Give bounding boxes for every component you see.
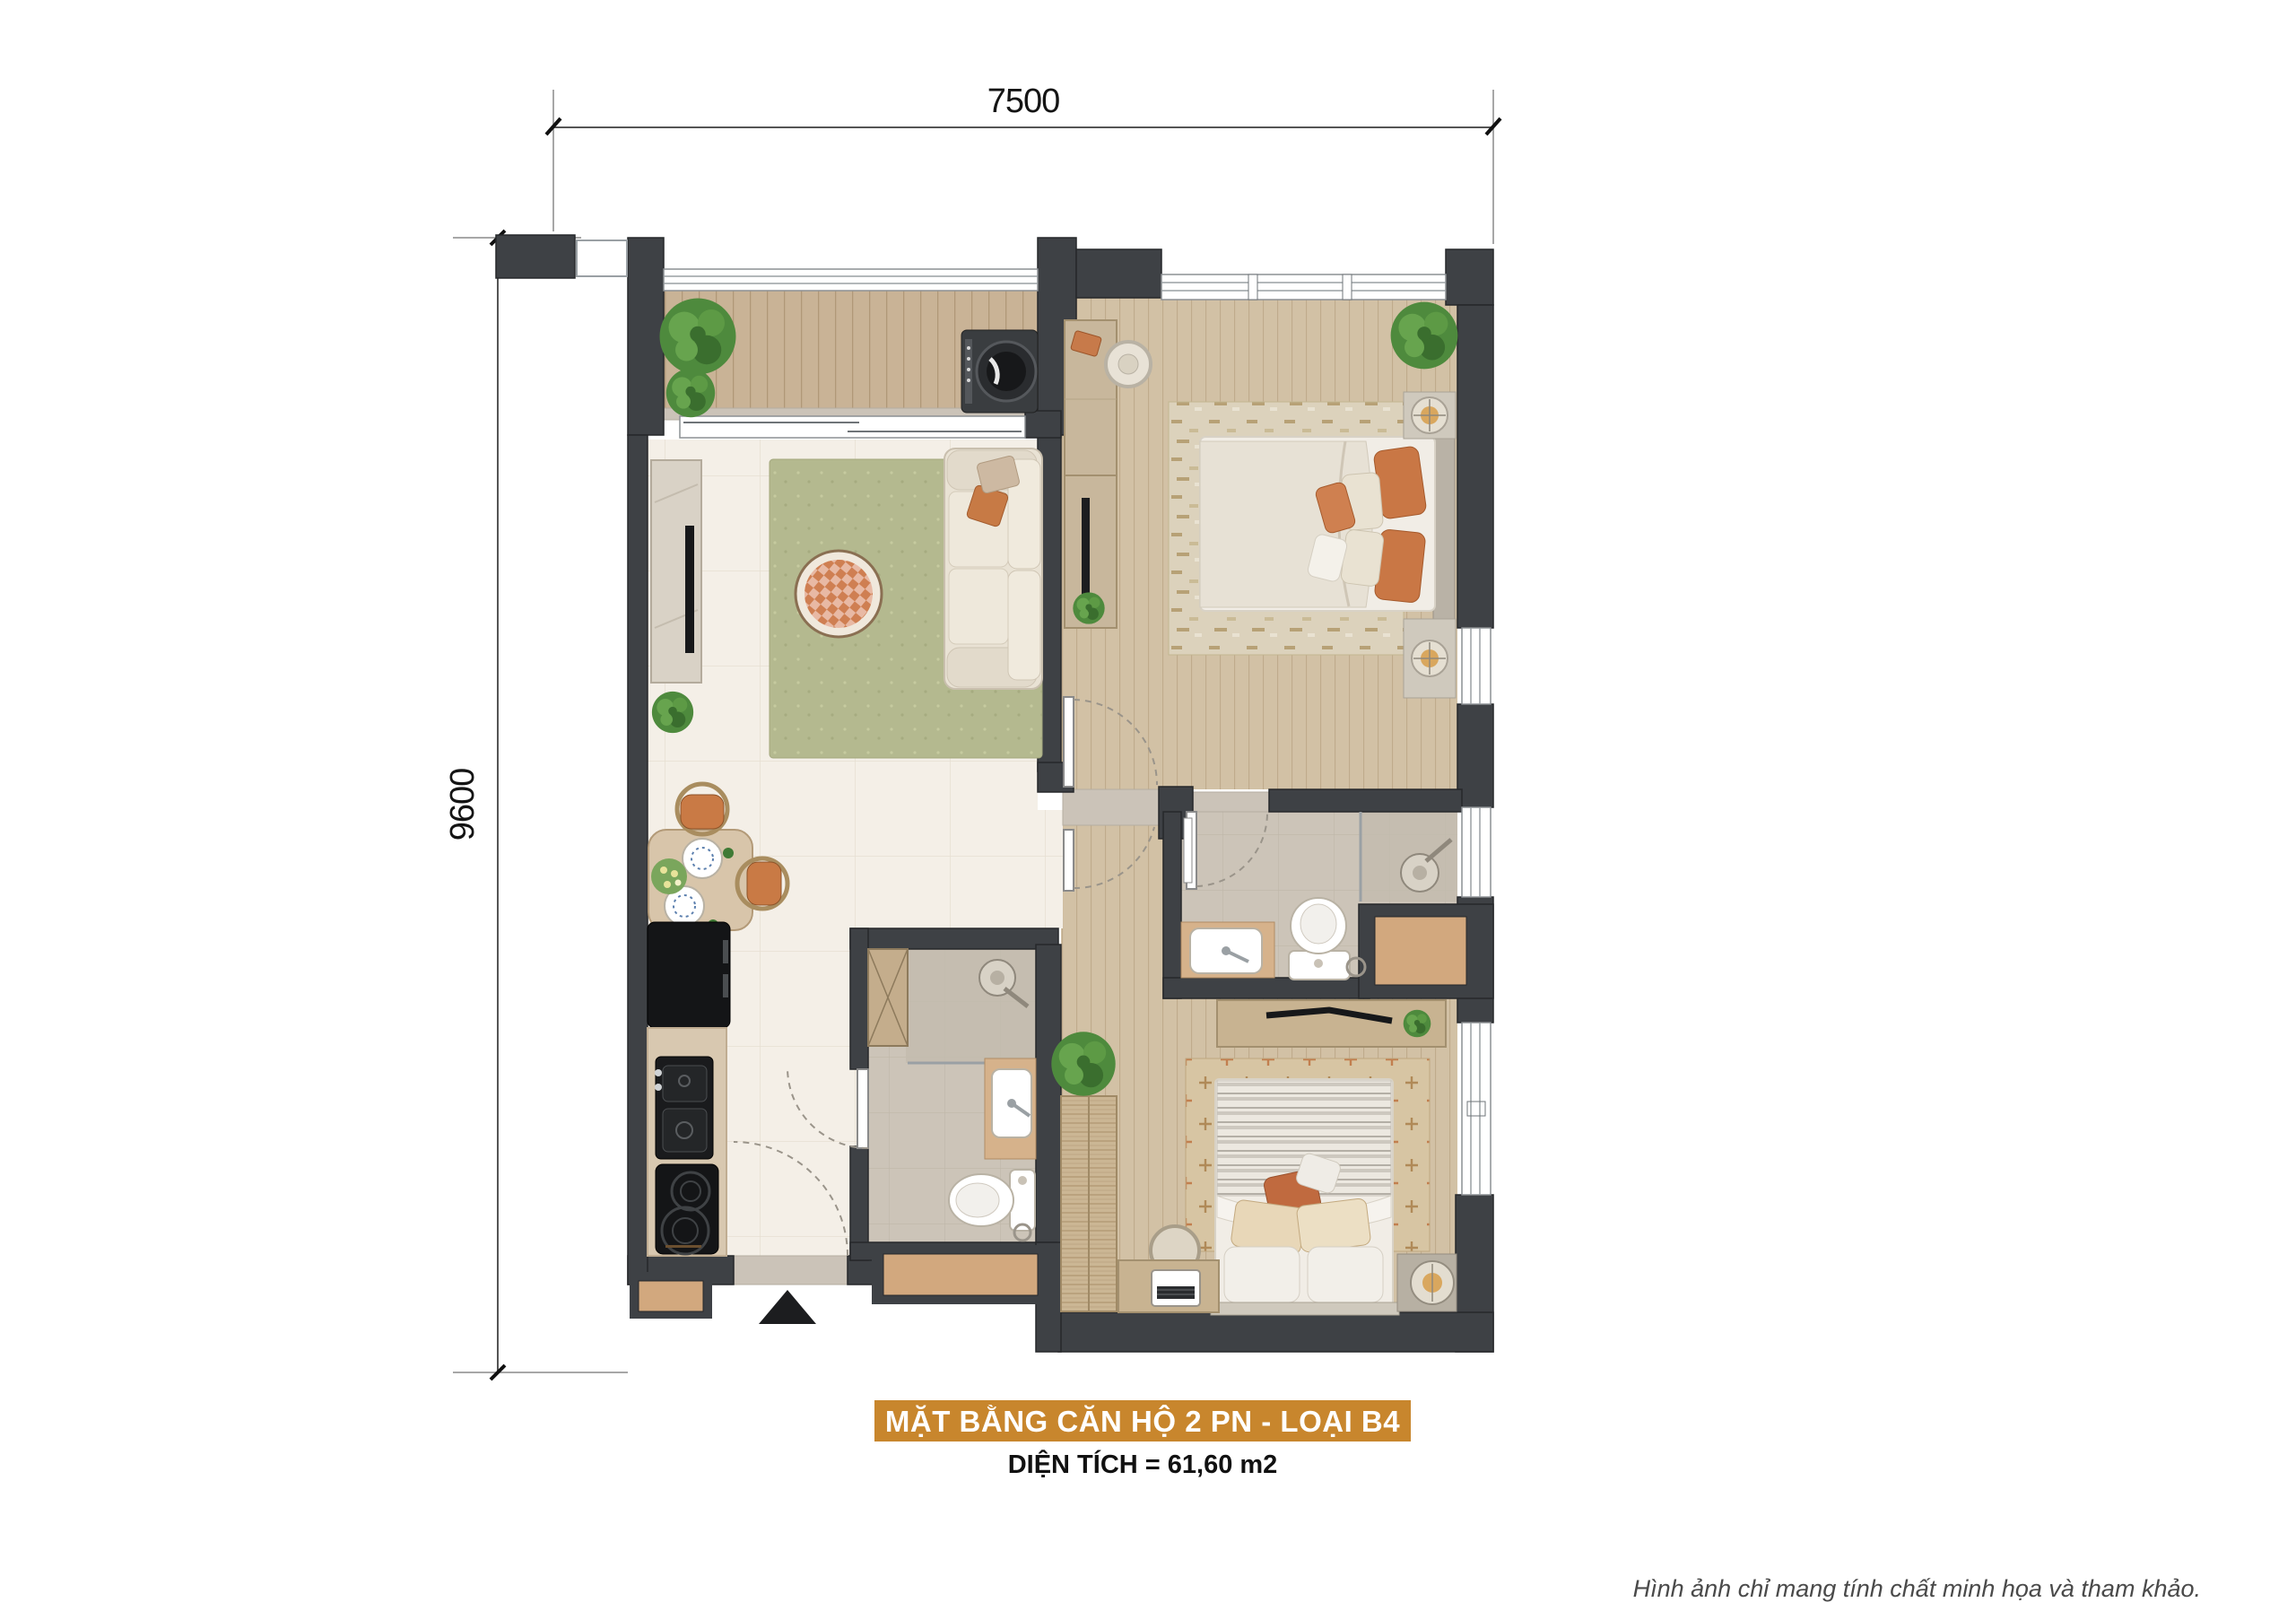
ensuite-toilet [1289, 898, 1350, 980]
living-plant [652, 692, 693, 733]
kitchen-sink [655, 1057, 713, 1159]
towel-rail [1184, 818, 1192, 883]
dimension-top-label: 7500 [987, 83, 1060, 120]
tv-console [651, 460, 701, 683]
dimension-top: 7500 [546, 83, 1500, 244]
entry-arrow-icon [759, 1290, 816, 1324]
dimension-left-label: 9600 [444, 769, 482, 841]
side-window-bedroom2 [1462, 1023, 1491, 1195]
plate-1 [683, 839, 722, 878]
bath2-sink [985, 1058, 1036, 1159]
sliding-door-balcony [680, 416, 1025, 438]
washing-machine [961, 330, 1038, 413]
passage-tile [1038, 810, 1063, 928]
flower-vase [651, 858, 687, 894]
master-plant [1391, 302, 1458, 370]
cooktop [656, 1164, 718, 1254]
ensuite-sink [1181, 922, 1274, 978]
tv [685, 526, 694, 653]
floor-plan-page: { "dimensions": { "top": "7500", "left":… [0, 0, 2296, 1620]
tv-console-2 [1217, 1000, 1446, 1047]
kitchen [648, 922, 730, 1256]
balcony-fern [666, 369, 715, 417]
fridge [648, 922, 730, 1028]
disclaimer-text: Hình ảnh chỉ mang tính chất minh họa và … [1633, 1575, 2201, 1603]
balcony-plant [660, 299, 736, 375]
side-window-master [1462, 628, 1491, 704]
nightstand-south [1404, 619, 1456, 698]
bedroom2-plant [1051, 1032, 1115, 1095]
area-text: DIỆN TÍCH = 61,60 m2 [874, 1450, 1411, 1480]
title-banner: MẶT BẰNG CĂN HỘ 2 PN - LOẠI B4 [874, 1400, 1411, 1441]
sofa [944, 449, 1042, 689]
console-plant [1404, 1010, 1431, 1038]
headboard [1433, 423, 1455, 628]
nightstand-bedroom2 [1397, 1254, 1457, 1311]
headboard [1211, 1302, 1399, 1315]
coffee-table [796, 551, 882, 637]
pillow-cream-2 [1341, 529, 1385, 588]
bath2-toilet [949, 1170, 1035, 1231]
floor-plan-drawing: 7500 9600 [0, 0, 2296, 1620]
bath2-shower-floor [906, 949, 1036, 1063]
balcony-railing [664, 269, 1038, 291]
dresser-plant [1073, 592, 1104, 623]
master-bedroom-window [1161, 274, 1446, 300]
tv [1082, 498, 1090, 605]
master-bed [1200, 423, 1455, 628]
bedroom2-bed [1211, 1079, 1399, 1315]
side-window-ensuite [1462, 807, 1491, 897]
laptop [1152, 1270, 1200, 1306]
dimension-left: 9600 [444, 231, 628, 1380]
nightstand-north [1404, 392, 1456, 439]
shaft-closet [868, 949, 908, 1046]
pillow-stripe-2 [1296, 1198, 1371, 1252]
